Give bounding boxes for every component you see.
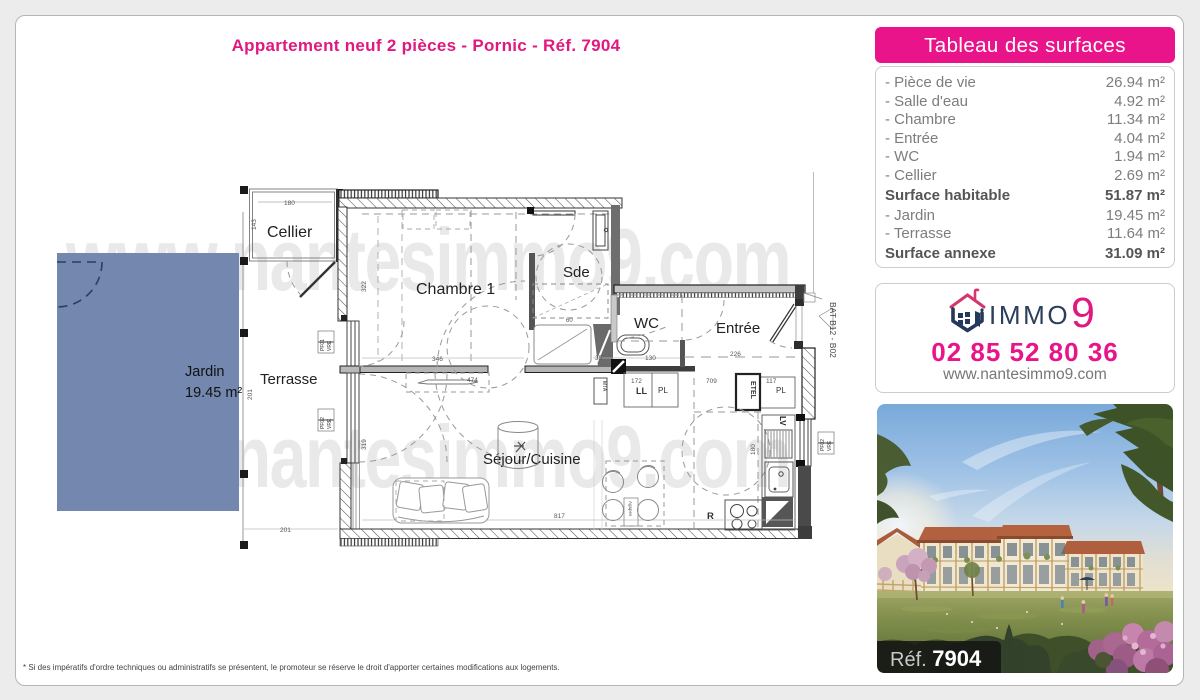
svg-text:201: 201 (247, 389, 254, 400)
svg-text:60: 60 (566, 318, 573, 324)
svg-text:474: 474 (467, 377, 478, 384)
svg-text:117: 117 (766, 378, 777, 385)
svg-text:143: 143 (251, 219, 258, 230)
svg-text:VRE: VRE (827, 440, 833, 451)
svg-text:IMMO: IMMO (989, 300, 1070, 330)
svg-text:172: 172 (631, 378, 642, 385)
svg-text:35: 35 (595, 355, 603, 362)
svg-text:LV: LV (778, 416, 787, 426)
svg-text:PF01: PF01 (320, 339, 326, 351)
svg-text:709: 709 (706, 378, 717, 385)
svg-text:226: 226 (730, 351, 741, 358)
svg-text:322: 322 (361, 281, 368, 292)
svg-text:201: 201 (280, 527, 291, 534)
svg-text:Cellier: Cellier (267, 224, 313, 241)
svg-text:Terrasse: Terrasse (260, 371, 318, 388)
svg-text:LL: LL (636, 386, 647, 396)
svg-text:WC: WC (634, 315, 659, 332)
svg-text:Sde: Sde (563, 264, 590, 281)
svg-text:180: 180 (750, 444, 757, 455)
svg-text:Réf. 7904: Réf. 7904 (890, 646, 982, 671)
svg-text:Jardin: Jardin (185, 364, 225, 380)
svg-text:VRE: VRE (327, 340, 333, 351)
svg-text:Chambre 1: Chambre 1 (416, 281, 495, 298)
svg-text:130: 130 (645, 355, 656, 362)
svg-text:19.45 m²: 19.45 m² (185, 385, 242, 401)
svg-text:319: 319 (361, 439, 368, 450)
svg-text:VRE: VRE (327, 418, 333, 429)
svg-text:346: 346 (432, 356, 443, 363)
svg-text:PF02: PF02 (820, 439, 826, 451)
svg-text:BAT B12 - B02: BAT B12 - B02 (828, 302, 838, 358)
svg-text:PF02: PF02 (320, 417, 326, 429)
svg-text:02 85 52 80 36: 02 85 52 80 36 (931, 337, 1119, 367)
svg-text:Agapes: Agapes (628, 501, 633, 517)
svg-text:www.nantesimmo9.com: www.nantesimmo9.com (942, 366, 1107, 383)
svg-text:PL: PL (658, 386, 668, 395)
svg-text:ETEL: ETEL (749, 381, 756, 400)
svg-text:9: 9 (1071, 289, 1095, 337)
svg-text:817: 817 (554, 513, 565, 520)
svg-text:PL: PL (776, 386, 786, 395)
svg-text:180: 180 (284, 200, 295, 207)
svg-text:Entrée: Entrée (716, 320, 760, 337)
svg-text:MTA: MTA (601, 381, 607, 392)
